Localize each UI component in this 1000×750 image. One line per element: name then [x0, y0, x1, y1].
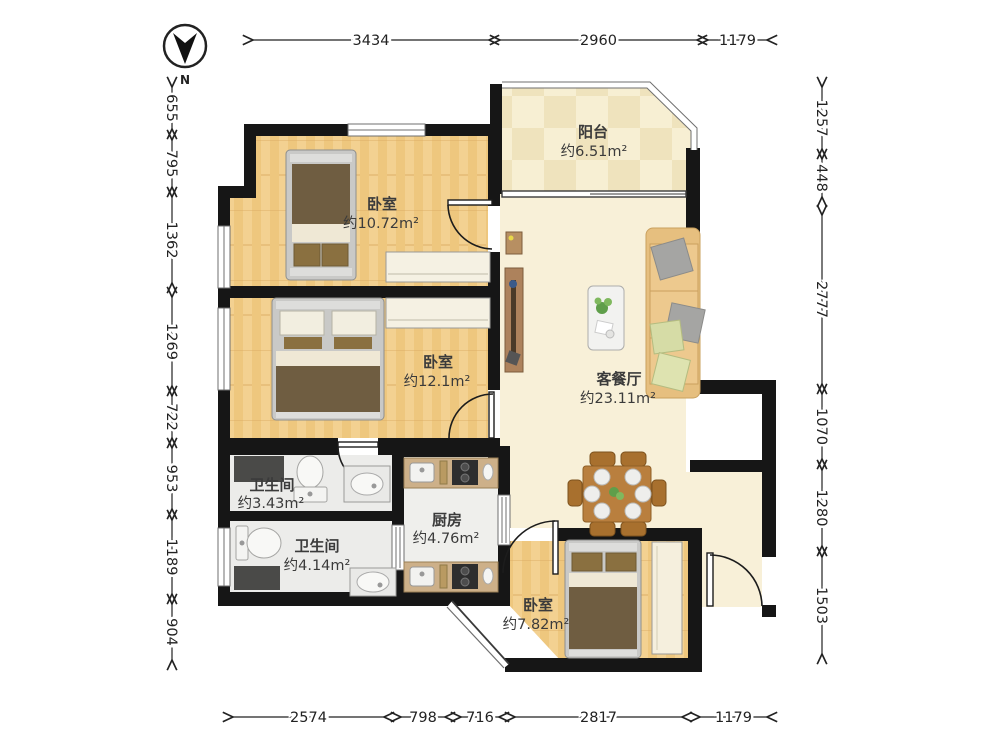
- dimension-label-left: 722: [163, 403, 179, 431]
- bath2-area: 约4.14m²: [284, 557, 351, 574]
- bedroom2-left-window: [218, 308, 230, 390]
- balcony-area: 约6.51m²: [561, 143, 628, 160]
- bed-bedroom3: [565, 540, 641, 658]
- bedroom3-area: 约7.82m²: [503, 616, 570, 633]
- dimension-label-bottom: 2574: [290, 710, 327, 726]
- dimension-label-bottom: 2817: [580, 710, 617, 726]
- kitchen-counter-bottom: [404, 562, 498, 592]
- bath2-label: 卫生间: [294, 537, 339, 555]
- dimension-label-left: 1362: [163, 222, 179, 259]
- dimension-label-left: 953: [163, 465, 179, 493]
- living-label: 客餐厅: [595, 370, 641, 388]
- dimension-label-right: 1280: [813, 490, 829, 527]
- dimension-label-left: 1269: [163, 323, 179, 360]
- bed-bedroom1: [286, 150, 356, 280]
- dimension-label-right: 448: [813, 164, 829, 192]
- dimension-label-bottom: 798: [409, 710, 437, 726]
- dimension-label-right: 2777: [813, 281, 829, 318]
- north-compass: N: [164, 25, 206, 87]
- dimension-label-right: 1257: [813, 100, 829, 137]
- wardrobe-bedroom3: [652, 542, 682, 654]
- floor-plan-canvas: 阳台 约6.51m² 卧室 约10.72m² 卧室 约12.1m² 客餐厅 约2…: [0, 0, 1000, 750]
- kitchen-slider-door: [498, 495, 510, 545]
- dimension-label-top: 2960: [580, 33, 617, 49]
- tv-cabinet: [505, 232, 523, 372]
- balcony-label: 阳台: [578, 123, 608, 141]
- dimension-label-bottom: 1179: [715, 710, 752, 726]
- bath1-area: 约3.43m²: [238, 495, 305, 512]
- dimension-label-right: 1503: [813, 587, 829, 624]
- dimension-label-left: 904: [163, 618, 179, 646]
- bedroom2-area: 约12.1m²: [404, 373, 471, 390]
- dimension-label-right: 1070: [813, 408, 829, 445]
- dimension-label-left: 1189: [163, 539, 179, 576]
- dimension-label-left: 795: [163, 150, 179, 178]
- bath2-slider-door: [392, 525, 404, 570]
- dimension-label-bottom: 716: [466, 710, 494, 726]
- bedroom2-label: 卧室: [423, 353, 453, 371]
- kitchen-area: 约4.76m²: [413, 530, 480, 547]
- bedroom3-label: 卧室: [523, 596, 553, 614]
- bath1-label: 卫生间: [249, 476, 294, 494]
- bath2-left-window: [218, 528, 230, 586]
- bedroom1-area: 约10.72m²: [343, 215, 419, 232]
- bedroom1-left-window: [218, 226, 230, 288]
- compass-n-label: N: [180, 73, 190, 87]
- wardrobe-bedroom1: [386, 252, 490, 282]
- dimension-label-top: 1179: [719, 33, 756, 49]
- kitchen-counter-top: [404, 458, 498, 488]
- living-area: 约23.11m²: [580, 390, 656, 407]
- coffee-table: [588, 286, 624, 350]
- kitchen-label: 厨房: [432, 511, 462, 529]
- bedroom1-label: 卧室: [367, 195, 397, 213]
- bedroom3-corner-window: [447, 601, 509, 668]
- floor-plan-page: 阳台 约6.51m² 卧室 约10.72m² 卧室 约12.1m² 客餐厅 约2…: [0, 0, 1000, 750]
- dimension-label-top: 3434: [353, 33, 390, 49]
- balcony-living-slider: [502, 191, 686, 197]
- wardrobe-bedroom2: [386, 298, 490, 328]
- bed-bedroom2: [272, 298, 384, 420]
- bedroom1-top-window: [348, 124, 425, 136]
- dimension-label-left: 655: [163, 94, 179, 122]
- sofa: [646, 228, 705, 398]
